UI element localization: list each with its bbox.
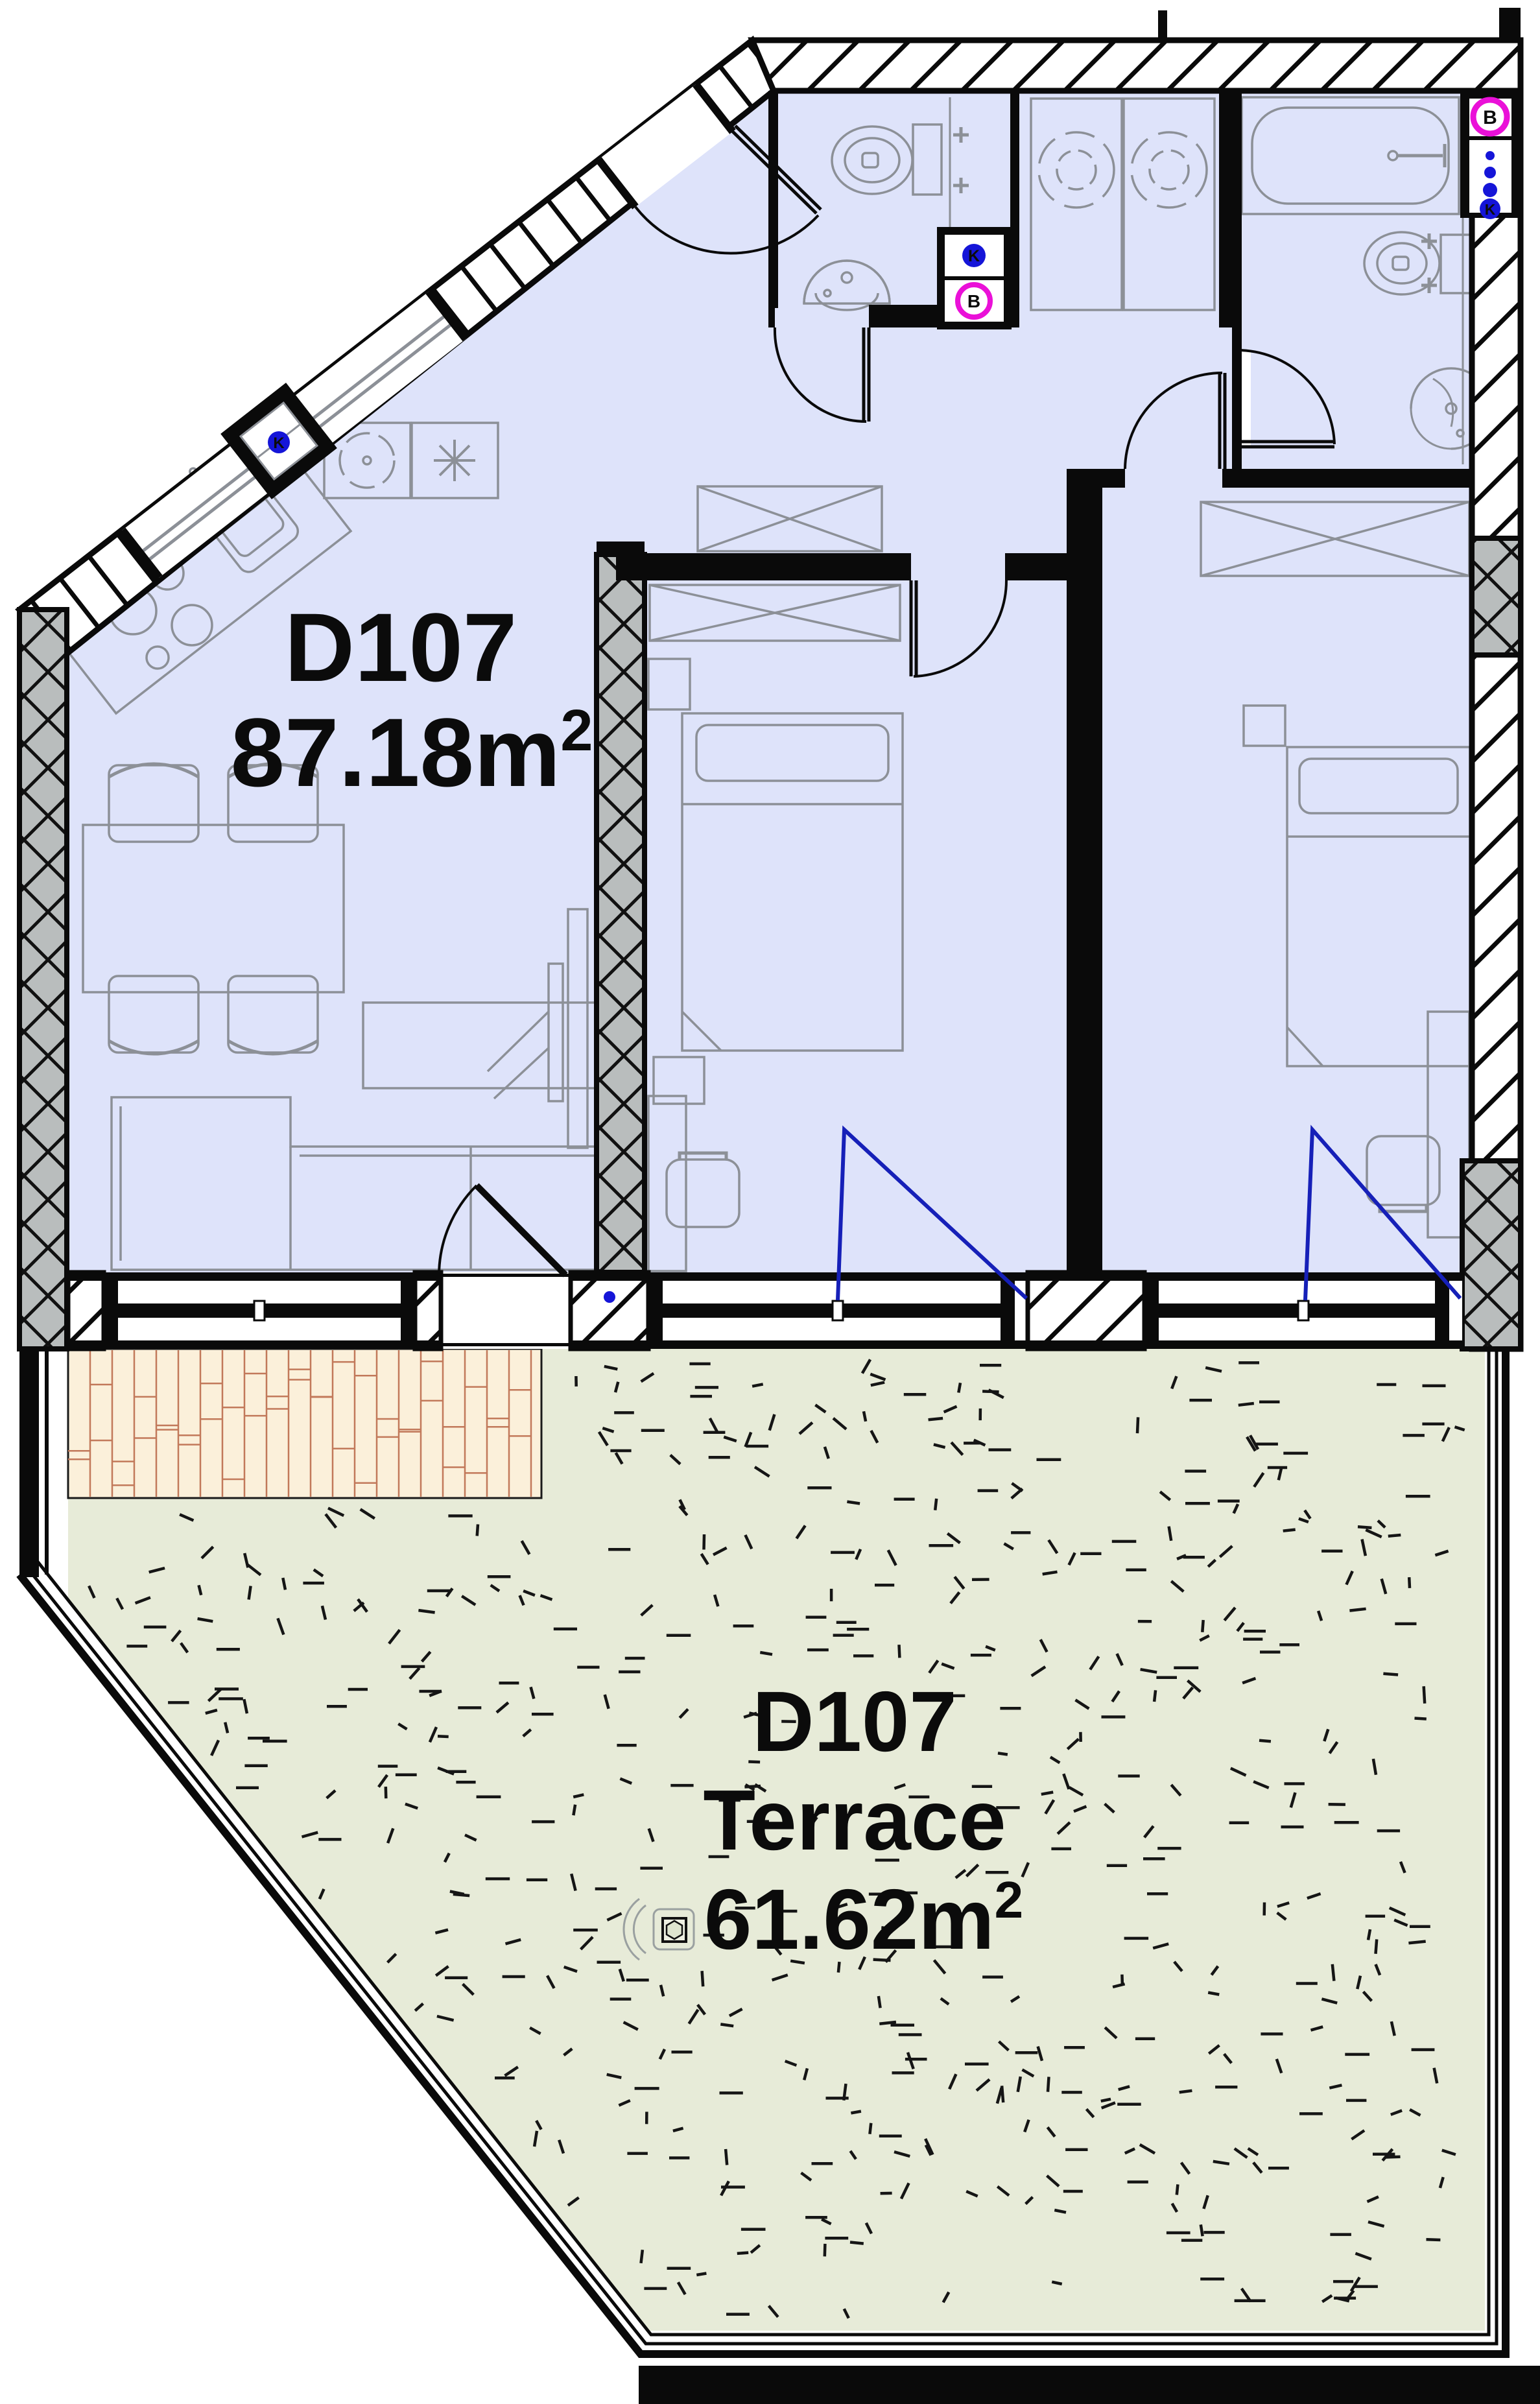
bath1-b-icon: B bbox=[958, 285, 990, 317]
terrace-left-wall bbox=[19, 1349, 39, 1577]
terrace-unit-id: D107 bbox=[752, 1674, 957, 1769]
bath1-k-icon: K bbox=[962, 244, 986, 267]
terrace-area: 61.62m2 bbox=[704, 1871, 1023, 1967]
svg-text:B: B bbox=[967, 291, 980, 311]
right-wall-column bbox=[1472, 538, 1521, 655]
floor-plan-page: D107 Terrace 61.62m2 bbox=[0, 0, 1540, 2404]
floor-plan-drawing: D107 Terrace 61.62m2 bbox=[0, 0, 1540, 2404]
unit-area: 87.18m2 bbox=[231, 698, 593, 807]
svg-text:B: B bbox=[1483, 107, 1497, 128]
svg-text:K: K bbox=[1485, 201, 1496, 218]
blue-dot bbox=[604, 1291, 615, 1303]
corner-column bbox=[1462, 1161, 1521, 1349]
top-wall bbox=[752, 40, 1521, 91]
unit-id: D107 bbox=[285, 593, 517, 702]
svg-text:K: K bbox=[273, 434, 285, 452]
freezer-icon bbox=[434, 440, 475, 481]
terrace-name: Terrace bbox=[703, 1772, 1006, 1868]
bath2-k-icon: K bbox=[1480, 198, 1500, 219]
svg-text:K: K bbox=[968, 247, 980, 265]
living-bedroom1-partition bbox=[597, 554, 645, 1272]
kitchen-k-icon: K bbox=[268, 431, 290, 453]
bottom-wall bbox=[68, 1272, 1462, 1349]
left-wall bbox=[19, 610, 67, 1349]
terrace-shadow-band bbox=[639, 2366, 1540, 2404]
wood-deck bbox=[68, 1349, 541, 1498]
